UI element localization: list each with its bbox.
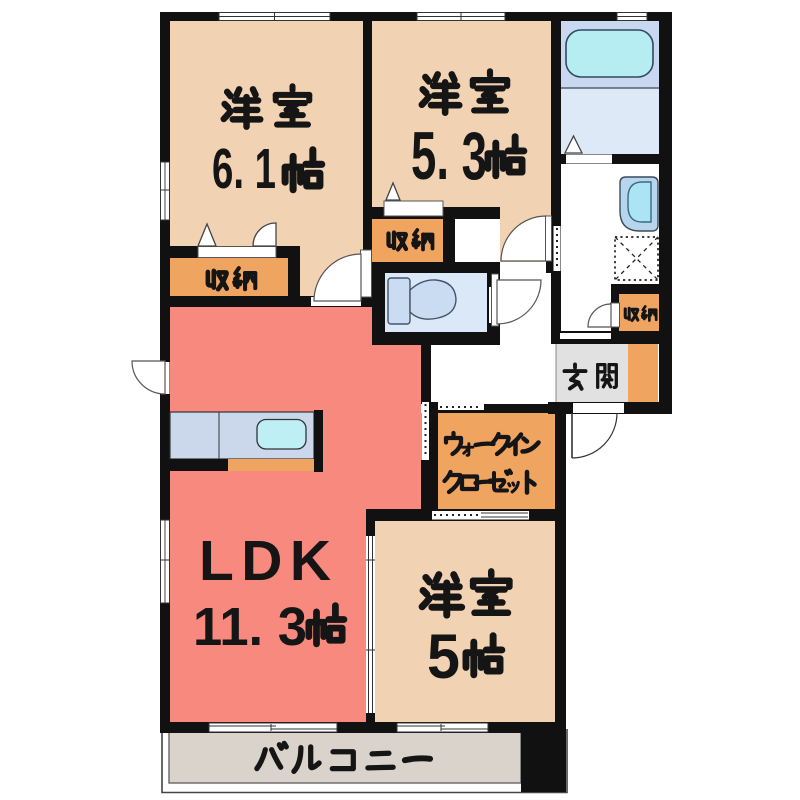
svg-text:5: 5 [427, 622, 460, 692]
svg-text:6. 1: 6. 1 [212, 137, 276, 201]
svg-text:LDK: LDK [199, 529, 331, 593]
svg-text:11. 3: 11. 3 [193, 597, 307, 657]
svg-text:5. 3: 5. 3 [411, 118, 487, 194]
